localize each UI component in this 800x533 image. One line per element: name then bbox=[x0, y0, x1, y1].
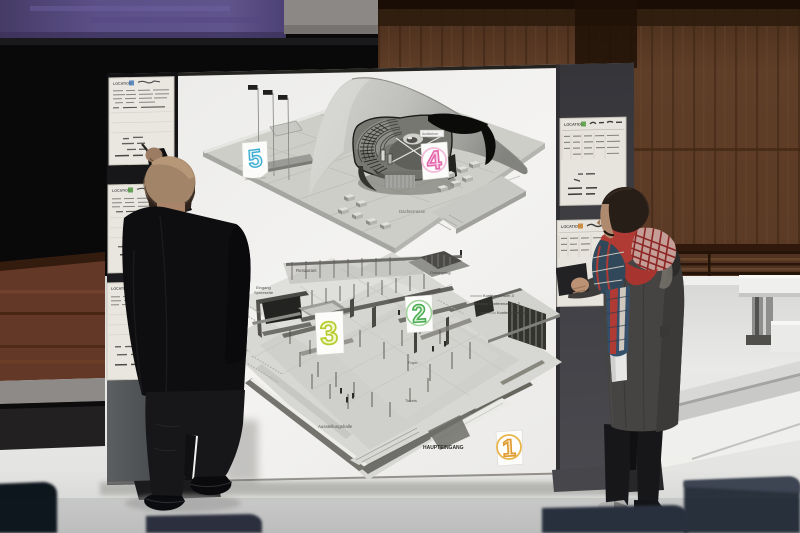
svg-text:2: 2 bbox=[411, 300, 427, 329]
svg-text:Konferenzraum 2: Konferenzraum 2 bbox=[489, 301, 520, 306]
svg-text:Spreeseite: Spreeseite bbox=[254, 290, 274, 295]
svg-text:Konferenzraum 3: Konferenzraum 3 bbox=[483, 293, 514, 298]
svg-text:Foyer: Foyer bbox=[408, 361, 418, 365]
svg-text:LOCATION: LOCATION bbox=[561, 225, 581, 229]
svg-text:Tickets: Tickets bbox=[405, 399, 417, 403]
svg-text:HAUPTEINGANG: HAUPTEINGANG bbox=[423, 445, 464, 451]
svg-text:Restaurant: Restaurant bbox=[296, 268, 317, 273]
svg-text:Ausstellungshalle: Ausstellungshalle bbox=[318, 424, 353, 429]
svg-text:LOCATION: LOCATION bbox=[564, 122, 584, 126]
svg-text:3: 3 bbox=[319, 314, 339, 351]
svg-text:Konferenzraum 1: Konferenzraum 1 bbox=[497, 310, 528, 315]
svg-text:Osteingang: Osteingang bbox=[430, 270, 450, 275]
svg-text:Dachterrasse: Dachterrasse bbox=[399, 209, 426, 214]
svg-text:Auditorium: Auditorium bbox=[422, 132, 438, 136]
svg-text:1: 1 bbox=[502, 435, 517, 463]
